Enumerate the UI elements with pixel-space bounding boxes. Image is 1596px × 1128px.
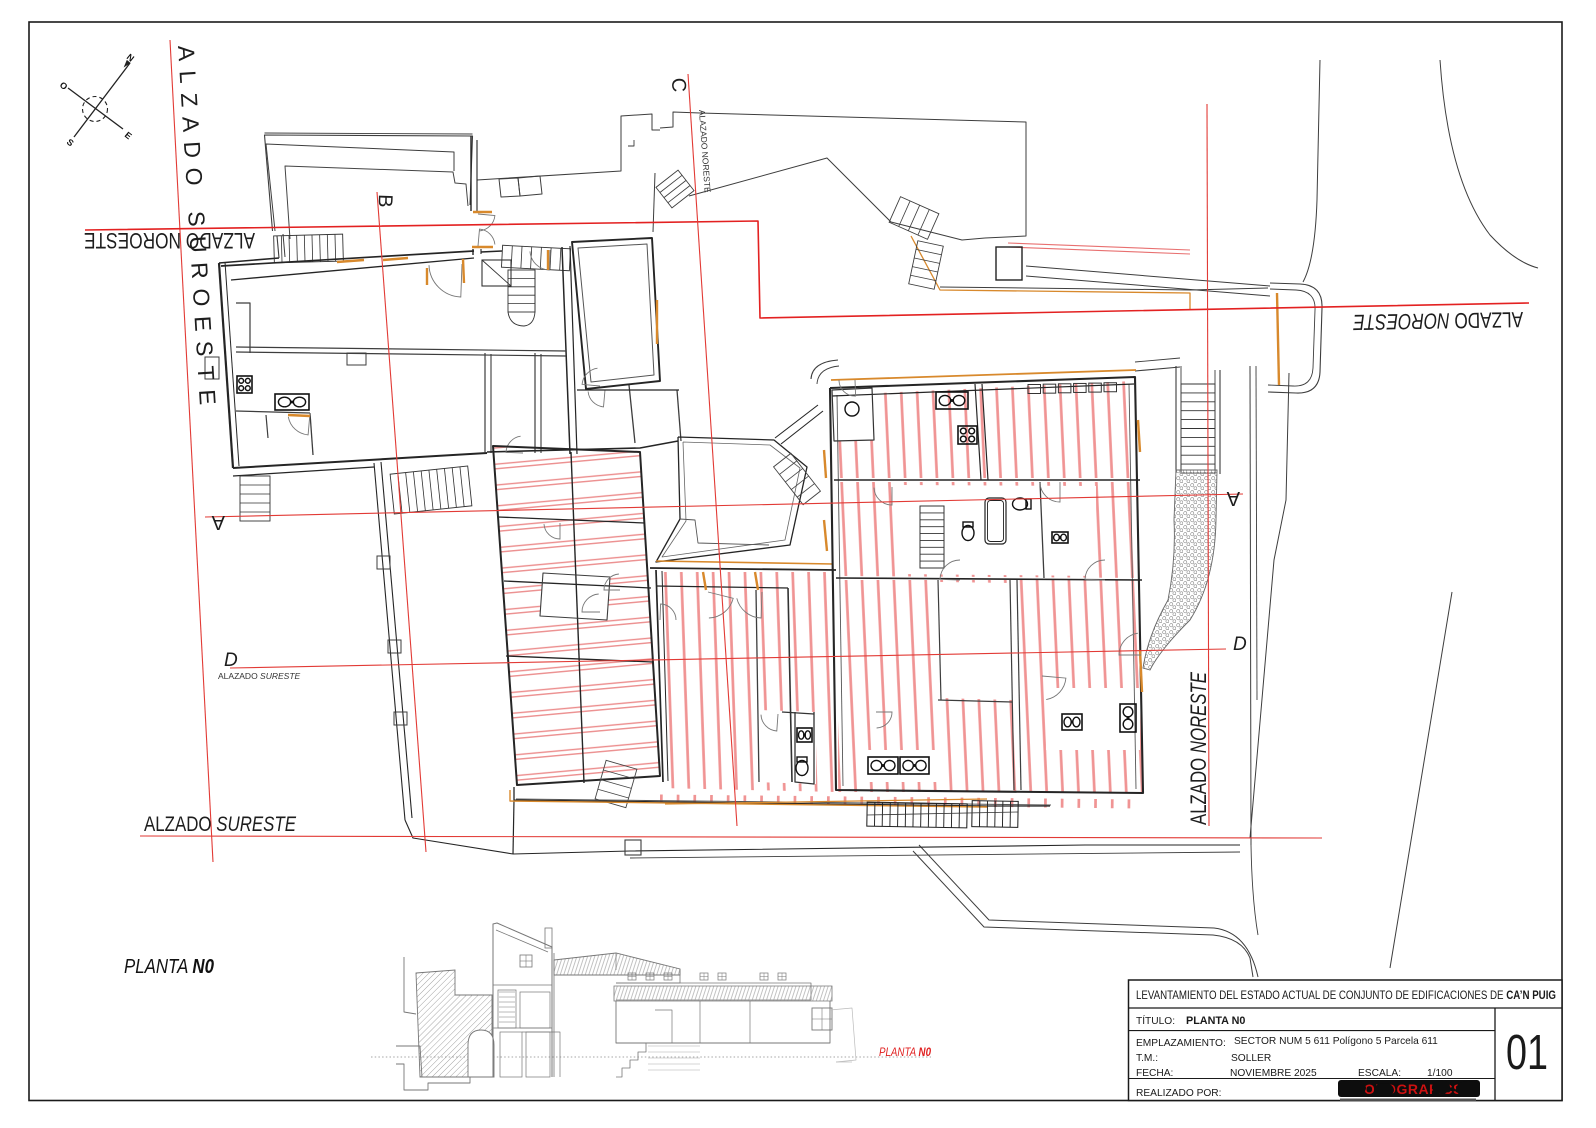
svg-text:SECTOR NUM 5 611 Polígono 5 Pa: SECTOR NUM 5 611 Polígono 5 Parcela 611	[1234, 1036, 1438, 1047]
svg-text:REALIZADO POR:: REALIZADO POR:	[1136, 1088, 1221, 1099]
svg-text:A: A	[211, 511, 225, 533]
svg-text:D: D	[224, 650, 238, 671]
svg-text:ALZADO SURESTE: ALZADO SURESTE	[144, 813, 297, 836]
svg-text:EMPLAZAMIENTO:: EMPLAZAMIENTO:	[1136, 1038, 1226, 1049]
svg-text:FECHA:: FECHA:	[1136, 1068, 1173, 1079]
svg-text:PLANTA N0: PLANTA N0	[1186, 1015, 1245, 1027]
svg-text:ALZADO NOROESTE: ALZADO NOROESTE	[1353, 307, 1524, 335]
svg-text:SOLLER: SOLLER	[1231, 1053, 1271, 1064]
svg-text:LEVANTAMIENTO DEL ESTADO ACTUA: LEVANTAMIENTO DEL ESTADO ACTUAL DE CONJU…	[1136, 988, 1556, 1002]
svg-text:ALAZADO SURESTE: ALAZADO SURESTE	[218, 671, 301, 681]
svg-text:PLANTA N0: PLANTA N0	[124, 956, 214, 978]
svg-text:D: D	[1233, 634, 1247, 655]
svg-text:ALZADO NOROESTE: ALZADO NOROESTE	[84, 228, 255, 253]
svg-text:TÍTULO:: TÍTULO:	[1136, 1014, 1175, 1027]
svg-text:1/100: 1/100	[1427, 1068, 1453, 1079]
svg-text:C: C	[667, 77, 689, 92]
svg-text:01: 01	[1506, 1026, 1548, 1080]
svg-text:ESCALA:: ESCALA:	[1358, 1068, 1401, 1079]
svg-text:PLANTA N0: PLANTA N0	[879, 1045, 931, 1059]
svg-text:NOVIEMBRE 2025: NOVIEMBRE 2025	[1230, 1068, 1317, 1079]
svg-text:ALZADO NORESTE: ALZADO NORESTE	[1186, 672, 1211, 825]
svg-text:B: B	[374, 194, 396, 208]
svg-text:T.M.:: T.M.:	[1136, 1053, 1158, 1064]
svg-text:A: A	[1226, 487, 1240, 509]
